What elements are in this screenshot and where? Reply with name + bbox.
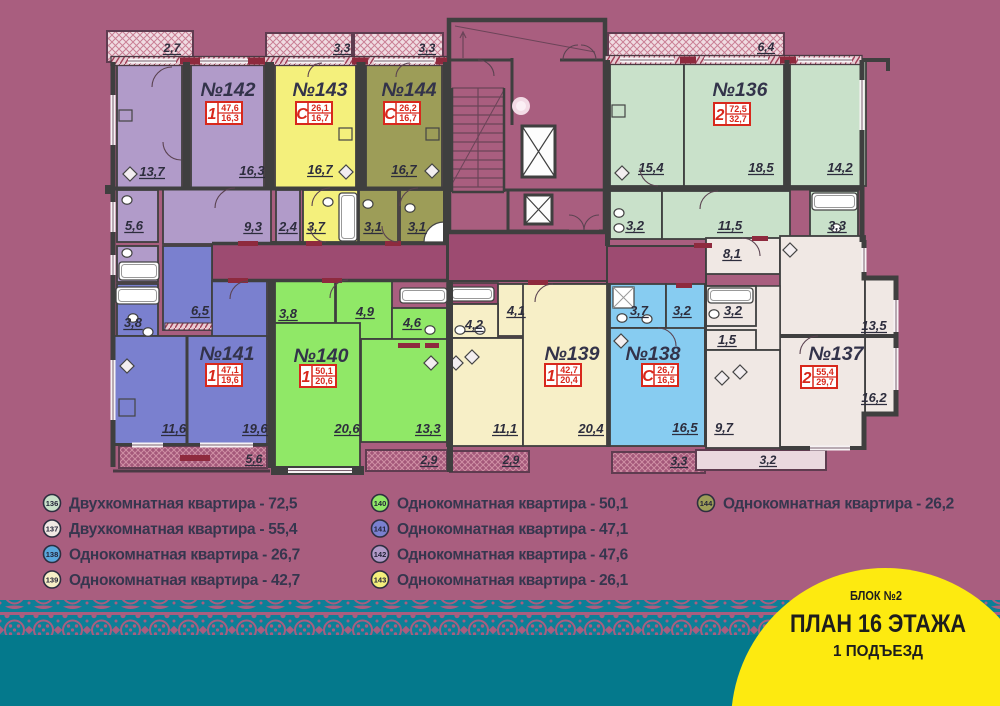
svg-text:5,6: 5,6 <box>125 218 144 233</box>
svg-text:20,6: 20,6 <box>333 421 360 436</box>
svg-text:№143: №143 <box>293 79 348 101</box>
svg-text:16,2: 16,2 <box>861 390 887 405</box>
svg-text:16,5: 16,5 <box>657 375 675 385</box>
svg-text:55,4: 55,4 <box>816 367 834 377</box>
svg-text:11,5: 11,5 <box>718 218 743 233</box>
svg-text:№141: №141 <box>200 343 255 365</box>
svg-text:3,2: 3,2 <box>760 453 777 467</box>
svg-text:3,8: 3,8 <box>124 315 143 330</box>
svg-text:20,6: 20,6 <box>315 376 333 386</box>
svg-text:16,7: 16,7 <box>399 113 417 123</box>
svg-text:3,3: 3,3 <box>671 454 688 468</box>
svg-text:№137: №137 <box>809 343 865 365</box>
svg-text:47,1: 47,1 <box>221 365 239 375</box>
svg-text:50,1: 50,1 <box>315 366 333 376</box>
svg-text:9,3: 9,3 <box>244 219 263 234</box>
svg-text:136: 136 <box>46 499 59 508</box>
svg-text:4,2: 4,2 <box>464 317 484 332</box>
svg-text:29,7: 29,7 <box>816 377 834 387</box>
svg-text:Однокомнатная квартира - 47,1: Однокомнатная квартира - 47,1 <box>397 521 629 538</box>
svg-text:3,7: 3,7 <box>630 303 649 318</box>
svg-text:20,4: 20,4 <box>577 421 604 436</box>
svg-text:2,4: 2,4 <box>278 219 298 234</box>
svg-text:2,9: 2,9 <box>420 453 438 467</box>
svg-text:3,2: 3,2 <box>724 303 743 318</box>
svg-text:3,3: 3,3 <box>419 41 436 55</box>
svg-text:1,5: 1,5 <box>718 332 737 347</box>
svg-text:Однокомнатная квартира - 26,2: Однокомнатная квартира - 26,2 <box>723 496 954 513</box>
svg-text:2: 2 <box>715 107 725 124</box>
svg-text:№136: №136 <box>713 79 768 101</box>
svg-text:1: 1 <box>302 369 311 386</box>
svg-text:32,7: 32,7 <box>729 114 747 124</box>
svg-text:№140: №140 <box>294 345 349 367</box>
svg-text:11,1: 11,1 <box>493 421 517 436</box>
svg-text:16,7: 16,7 <box>307 162 333 177</box>
svg-text:138: 138 <box>46 550 59 559</box>
svg-text:С: С <box>384 106 396 123</box>
svg-text:47,6: 47,6 <box>221 103 239 113</box>
svg-text:4,6: 4,6 <box>402 315 422 330</box>
svg-text:13,5: 13,5 <box>861 318 887 333</box>
svg-text:3,2: 3,2 <box>673 303 692 318</box>
svg-text:19,6: 19,6 <box>221 375 239 385</box>
svg-text:3,3: 3,3 <box>334 41 351 55</box>
svg-text:Однокомнатная квартира - 26,1: Однокомнатная квартира - 26,1 <box>397 572 629 589</box>
svg-text:№142: №142 <box>201 79 256 101</box>
svg-text:18,5: 18,5 <box>748 160 774 175</box>
svg-text:Однокомнатная квартира - 42,7: Однокомнатная квартира - 42,7 <box>69 572 300 589</box>
svg-text:19,6: 19,6 <box>242 421 268 436</box>
svg-text:72,5: 72,5 <box>729 104 747 114</box>
svg-text:144: 144 <box>700 499 713 508</box>
svg-text:Двухкомнатная квартира - 72,5: Двухкомнатная квартира - 72,5 <box>69 496 298 513</box>
svg-text:26,1: 26,1 <box>311 103 329 113</box>
svg-text:26,2: 26,2 <box>399 103 417 113</box>
svg-text:137: 137 <box>46 524 59 533</box>
svg-text:2,9: 2,9 <box>502 453 520 467</box>
svg-text:№139: №139 <box>545 343 600 365</box>
svg-text:16,3: 16,3 <box>221 113 239 123</box>
svg-text:БЛОК №2: БЛОК №2 <box>850 588 902 603</box>
svg-text:6,5: 6,5 <box>191 303 210 318</box>
svg-text:26,7: 26,7 <box>657 365 675 375</box>
svg-text:2,7: 2,7 <box>163 41 182 55</box>
svg-text:8,1: 8,1 <box>723 246 741 261</box>
svg-text:1: 1 <box>208 106 217 123</box>
svg-text:4,9: 4,9 <box>355 304 375 319</box>
svg-text:14,2: 14,2 <box>827 160 853 175</box>
svg-text:Двухкомнатная квартира - 55,4: Двухкомнатная квартира - 55,4 <box>69 521 298 538</box>
svg-text:139: 139 <box>46 575 59 584</box>
svg-text:9,7: 9,7 <box>715 420 734 435</box>
svg-text:141: 141 <box>374 524 387 533</box>
svg-text:20,4: 20,4 <box>560 375 578 385</box>
svg-text:13,7: 13,7 <box>139 164 165 179</box>
svg-text:С: С <box>296 106 308 123</box>
svg-text:142: 142 <box>374 550 387 559</box>
svg-text:16,7: 16,7 <box>391 162 417 177</box>
svg-text:Однокомнатная квартира - 50,1: Однокомнатная квартира - 50,1 <box>397 496 629 513</box>
svg-text:ПЛАН 16 ЭТАЖА: ПЛАН 16 ЭТАЖА <box>790 610 966 638</box>
svg-text:3,1: 3,1 <box>364 219 382 234</box>
svg-text:С: С <box>642 368 654 385</box>
svg-text:№144: №144 <box>382 79 437 101</box>
svg-text:6,4: 6,4 <box>758 40 775 54</box>
svg-text:11,6: 11,6 <box>162 421 187 436</box>
svg-text:№138: №138 <box>626 343 681 365</box>
svg-text:13,3: 13,3 <box>415 421 441 436</box>
svg-text:16,5: 16,5 <box>672 420 698 435</box>
svg-text:16,7: 16,7 <box>311 113 329 123</box>
svg-text:15,4: 15,4 <box>638 160 664 175</box>
svg-text:140: 140 <box>374 499 387 508</box>
svg-text:1 ПОДЪЕЗД: 1 ПОДЪЕЗД <box>833 643 924 660</box>
svg-text:16,3: 16,3 <box>239 163 265 178</box>
svg-text:Однокомнатная квартира - 26,7: Однокомнатная квартира - 26,7 <box>69 547 300 564</box>
svg-text:3,3: 3,3 <box>828 218 847 233</box>
svg-text:3,8: 3,8 <box>279 306 298 321</box>
svg-text:143: 143 <box>374 575 387 584</box>
svg-text:4,1: 4,1 <box>506 303 525 318</box>
svg-text:1: 1 <box>547 368 556 385</box>
svg-text:2: 2 <box>802 370 812 387</box>
svg-text:Однокомнатная квартира - 47,6: Однокомнатная квартира - 47,6 <box>397 547 629 564</box>
svg-text:5,6: 5,6 <box>246 452 263 466</box>
svg-text:3,1: 3,1 <box>408 219 426 234</box>
svg-text:3,2: 3,2 <box>626 218 645 233</box>
svg-text:42,7: 42,7 <box>560 365 578 375</box>
svg-text:1: 1 <box>208 368 217 385</box>
